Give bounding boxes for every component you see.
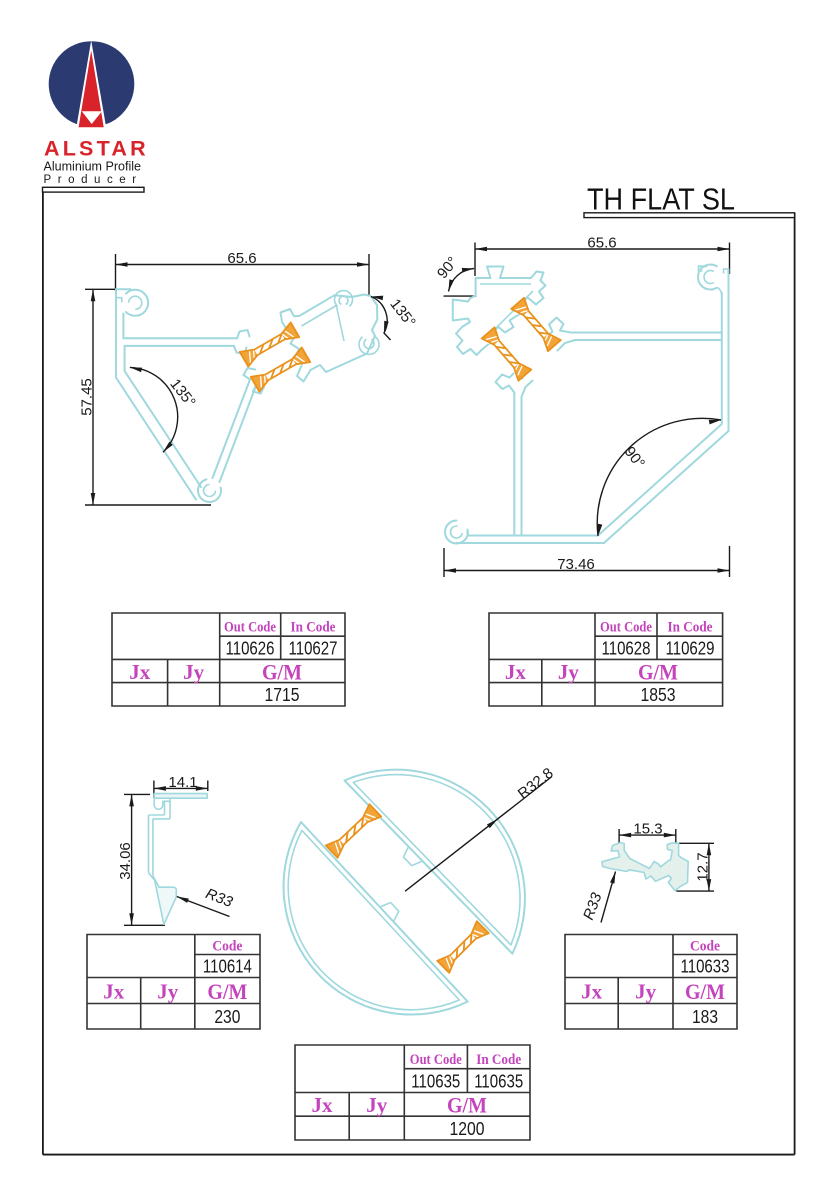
svg-text:Jy: Jy xyxy=(157,980,179,1004)
svg-text:110633: 110633 xyxy=(681,956,730,977)
svg-text:Out Code: Out Code xyxy=(600,620,652,636)
svg-text:Jy: Jy xyxy=(635,980,657,1004)
svg-text:Out Code: Out Code xyxy=(224,620,276,636)
svg-text:G/M: G/M xyxy=(447,1093,487,1118)
svg-text:G/M: G/M xyxy=(638,660,678,685)
svg-text:65.6: 65.6 xyxy=(587,235,616,252)
svg-text:183: 183 xyxy=(692,1006,718,1027)
svg-text:12.7: 12.7 xyxy=(694,852,711,881)
svg-text:ALSTAR: ALSTAR xyxy=(44,137,149,161)
svg-text:110635: 110635 xyxy=(411,1071,460,1092)
svg-text:1715: 1715 xyxy=(265,684,300,705)
svg-text:G/M: G/M xyxy=(262,660,302,685)
svg-text:1200: 1200 xyxy=(450,1118,485,1139)
svg-text:Producer: Producer xyxy=(44,174,142,186)
svg-text:14.1: 14.1 xyxy=(168,774,197,791)
svg-text:Code: Code xyxy=(690,939,720,955)
svg-text:Jx: Jx xyxy=(312,1093,334,1117)
svg-text:G/M: G/M xyxy=(685,979,725,1004)
svg-text:Out Code: Out Code xyxy=(410,1052,462,1068)
svg-text:34.06: 34.06 xyxy=(117,842,134,880)
svg-text:G/M: G/M xyxy=(207,979,247,1004)
svg-text:57.45: 57.45 xyxy=(78,378,95,416)
svg-text:In Code: In Code xyxy=(476,1052,521,1068)
svg-text:1853: 1853 xyxy=(641,684,676,705)
svg-text:110626: 110626 xyxy=(226,638,275,659)
svg-text:Code: Code xyxy=(212,939,242,955)
svg-text:TH FLAT SL: TH FLAT SL xyxy=(587,182,735,217)
svg-text:110635: 110635 xyxy=(474,1071,523,1092)
svg-text:110627: 110627 xyxy=(289,638,338,659)
svg-text:73.46: 73.46 xyxy=(557,556,595,573)
svg-text:Aluminium Profile: Aluminium Profile xyxy=(44,159,142,174)
svg-text:Jy: Jy xyxy=(558,660,580,684)
svg-text:110614: 110614 xyxy=(203,956,252,977)
svg-text:15.3: 15.3 xyxy=(633,821,662,838)
svg-text:110628: 110628 xyxy=(602,638,651,659)
svg-text:Jy: Jy xyxy=(366,1093,388,1117)
svg-text:Jx: Jx xyxy=(581,980,603,1004)
svg-text:Jx: Jx xyxy=(103,980,125,1004)
svg-text:110629: 110629 xyxy=(666,638,715,659)
svg-text:Jx: Jx xyxy=(129,660,151,684)
svg-text:65.6: 65.6 xyxy=(227,250,256,267)
svg-text:In Code: In Code xyxy=(291,620,336,636)
svg-text:230: 230 xyxy=(214,1006,240,1027)
svg-text:Jx: Jx xyxy=(505,660,527,684)
svg-text:In Code: In Code xyxy=(668,620,713,636)
svg-text:Jy: Jy xyxy=(183,660,205,684)
